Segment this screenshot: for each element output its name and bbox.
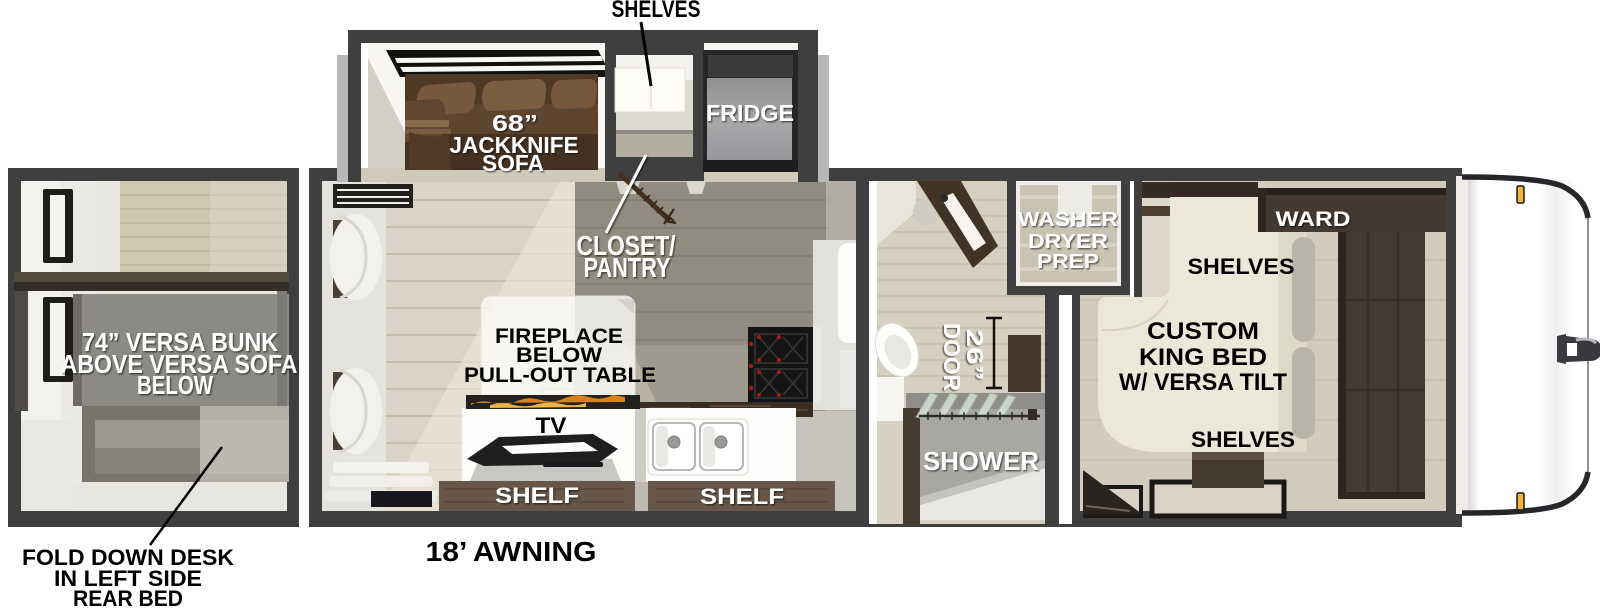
svg-text:DOOR: DOOR xyxy=(939,323,965,391)
svg-text:SHELVES: SHELVES xyxy=(612,0,701,23)
svg-text:W/ VERSA TILT: W/ VERSA TILT xyxy=(1119,369,1287,396)
svg-text:SHOWER: SHOWER xyxy=(923,446,1039,476)
svg-text:CUSTOM: CUSTOM xyxy=(1147,318,1259,345)
svg-text:18’ AWNING: 18’ AWNING xyxy=(426,536,597,567)
svg-text:SHELVES: SHELVES xyxy=(1188,254,1295,279)
svg-text:BELOW: BELOW xyxy=(137,370,213,400)
svg-text:SHELF: SHELF xyxy=(495,483,579,508)
svg-text:KING BED: KING BED xyxy=(1139,344,1267,371)
svg-text:FRIDGE: FRIDGE xyxy=(706,100,794,126)
svg-text:PULL-OUT TABLE: PULL-OUT TABLE xyxy=(464,364,656,387)
svg-text:REAR BED: REAR BED xyxy=(73,586,183,609)
svg-text:DRYER: DRYER xyxy=(1028,231,1109,253)
svg-text:SHELVES: SHELVES xyxy=(1191,427,1295,452)
svg-text:PANTRY: PANTRY xyxy=(584,252,671,283)
svg-text:WASHER: WASHER xyxy=(1018,209,1119,231)
svg-text:TV: TV xyxy=(536,413,567,438)
svg-text:SOFA: SOFA xyxy=(482,150,544,176)
svg-text:PREP: PREP xyxy=(1037,251,1099,273)
svg-text:WARD: WARD xyxy=(1276,208,1351,231)
svg-text:SHELF: SHELF xyxy=(700,484,784,509)
